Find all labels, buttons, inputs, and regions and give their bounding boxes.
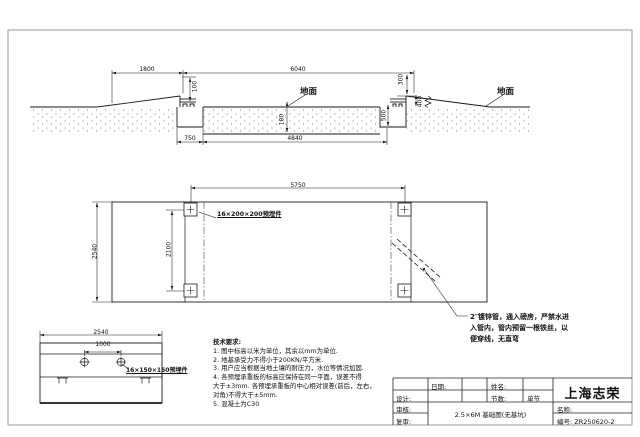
titleblock-sections-label: 节数: (491, 393, 506, 403)
tech-line: 对角)不得大于±5mm. (213, 391, 398, 400)
dim-ramp-height: 400 (417, 92, 424, 112)
dim-inner-span: 4840 (280, 135, 310, 142)
drawing-number-label: 编号: (557, 418, 572, 426)
dim-edge-height: 300 (398, 70, 405, 90)
titleblock-date-label: 日期: (431, 381, 446, 391)
dim-ramp-length: 1800 (132, 66, 162, 73)
ground-label-mid: 地面 (300, 85, 317, 97)
dim-plan-width: 2540 (92, 242, 99, 262)
tech-line: 4. 各预埋承重板的标高应保持在同一平面，误差不得 (213, 373, 398, 382)
dim-deck-length: 6040 (283, 66, 313, 73)
tech-requirements: 技术要求: 1. 图中标高以米为单位，其余以mm为单位. 2. 地基承受力不得小… (213, 338, 398, 408)
rebar-mark (57, 378, 68, 384)
plan-plate-label: 16×200×200预埋件 (217, 209, 282, 218)
tech-line: 1. 图中标高以米为单位，其余以mm为单位. (213, 347, 398, 356)
titleblock-name-label: 姓名: (491, 381, 506, 391)
dim-plate-gap: 2100 (166, 240, 173, 260)
titleblock-sections-value: 单节 (527, 393, 540, 403)
titleblock-title-label: 名称: (557, 404, 572, 414)
pipe-note-line: 便穿线，无直弯 (470, 334, 569, 345)
detail-plate-label: 16×150×150预埋件 (126, 365, 187, 374)
detail-dimension-lines (40, 331, 162, 369)
drawing-number: 编号: ZR250620-2 (557, 416, 615, 426)
ground-label-right: 地面 (497, 85, 514, 97)
dim-pier-depth: 500 (381, 106, 388, 126)
company-name: 上海志荣 (553, 383, 632, 402)
pipe-note-line: 2″镀锌管，通入磅房，严禁水进 (470, 312, 569, 323)
titleblock-design-label: 设计: (396, 393, 411, 403)
rebar-mark (140, 378, 151, 384)
titleblock-recheck-label: 复审: (396, 416, 411, 426)
dim-slab-depth: 180 (279, 110, 286, 130)
dim-pier-width: 750 (175, 135, 205, 142)
dim-detail-width: 2540 (86, 329, 116, 336)
drawing-title: 2.5×6M 基础图(无基坑) (428, 409, 553, 419)
pipe-note-line: 入管内，管内预留一根铁丝，以 (470, 323, 569, 334)
tech-line: 3. 用户应当根据当地土壤的耐压力，水位等情况加固. (213, 364, 398, 373)
dim-bolt-spacing: 1000 (88, 341, 118, 348)
titleblock-review-label: 审核: (396, 404, 411, 414)
drawing-sheet: 1800 6040 300 100 400 500 180 750 4840 地… (0, 0, 640, 437)
drawing-number-value: ZR250620-2 (574, 418, 614, 426)
tech-title: 技术要求: (213, 338, 398, 347)
dim-plate-span: 5750 (283, 182, 313, 189)
pipe-note: 2″镀锌管，通入磅房，严禁水进 入管内，管内预留一根铁丝，以 便穿线，无直弯 (470, 312, 569, 345)
tech-line: 大于±3mm. 各预埋承重板的中心相对误差(前后，左右， (213, 382, 398, 391)
dim-step-height: 100 (192, 77, 199, 97)
rebar-coil-symbol (425, 96, 431, 108)
tech-line: 5. 混凝土为C30 (213, 400, 398, 409)
